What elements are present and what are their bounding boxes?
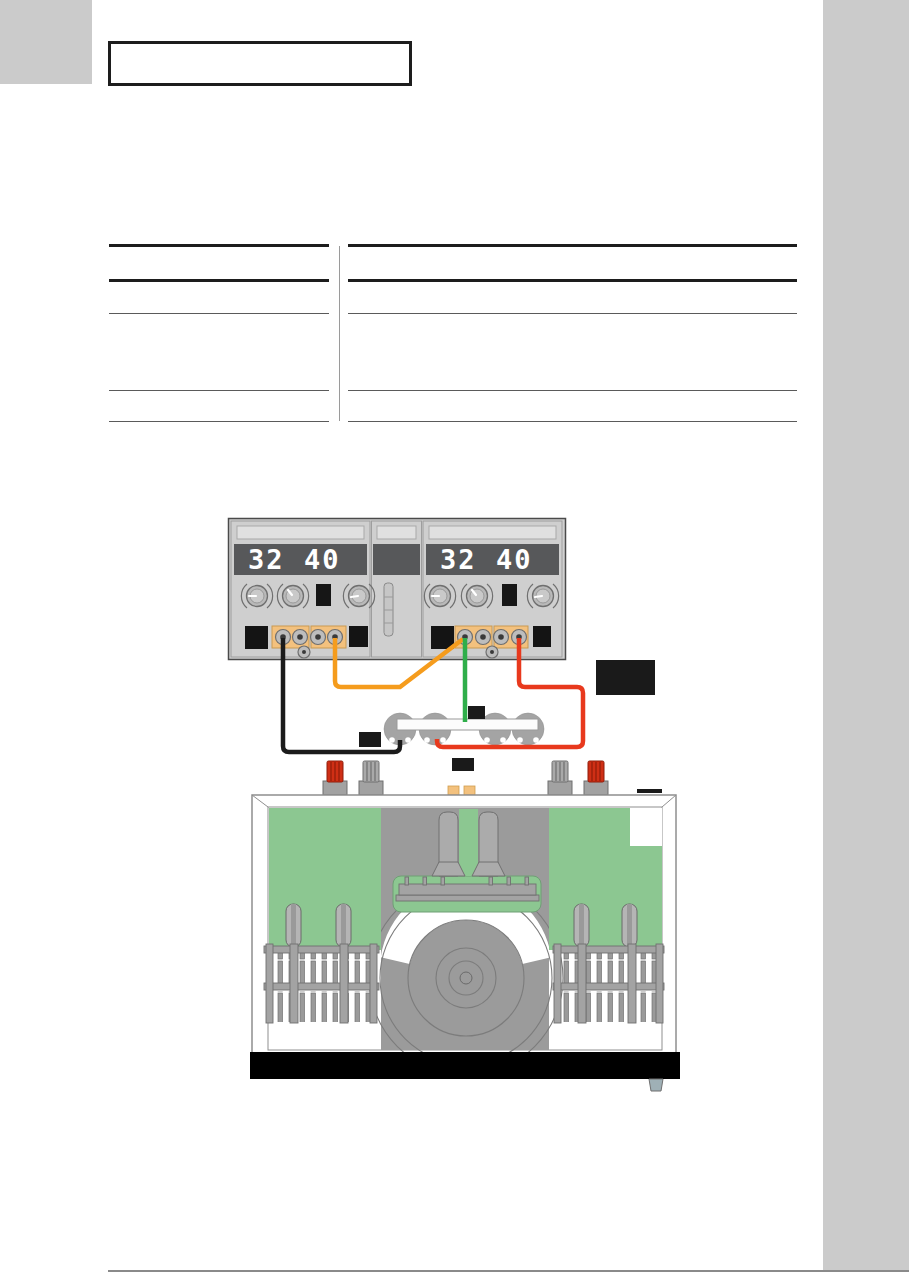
fuse-terminal [448,786,459,795]
psu-left-button [316,584,331,606]
capacitor [622,904,637,947]
capacitor [286,904,301,947]
psu-right-display-value-2: 40 [496,544,533,575]
meter-apparatus [250,761,680,1091]
psu-middle-panel [372,521,422,657]
fuse-terminal [464,786,475,795]
psu-left-top-strip [237,526,364,539]
busbar-bar [397,719,538,730]
document-page: 32 40 32 40 [0,0,909,1286]
binding-post-gray [548,761,572,795]
device-base-bar [250,1052,680,1079]
binding-post-red [323,761,347,795]
psu-middle-top-strip [377,526,416,539]
heatsink-left [264,944,379,1023]
power-supply-assembly: 32 40 32 40 [229,519,566,660]
psu-left-display-value-1: 32 [248,544,285,575]
psu-middle-band [373,544,420,575]
binding-post-red [584,761,608,795]
psu-right-button [502,584,517,606]
psu-left-display-value-2: 40 [304,544,341,575]
label-dash [637,789,662,793]
psu-right-display-value-1: 32 [440,544,477,575]
capacitor [574,904,589,947]
yoke-gap [459,809,478,876]
disc-spindle [460,972,472,984]
label-block [359,732,381,747]
label-block [452,758,474,771]
psu-right-top-strip [429,526,556,539]
heatsink-right [553,944,664,1023]
binding-post-gray [359,761,383,795]
capacitor [336,904,351,947]
wiring-diagram: 32 40 32 40 [0,0,909,1286]
pcb-right-notch [630,808,662,846]
coil-rail-lip [396,895,539,901]
label-block [596,660,655,695]
label-block [468,706,485,719]
coil-rail [399,884,536,895]
device-foot [649,1079,663,1091]
